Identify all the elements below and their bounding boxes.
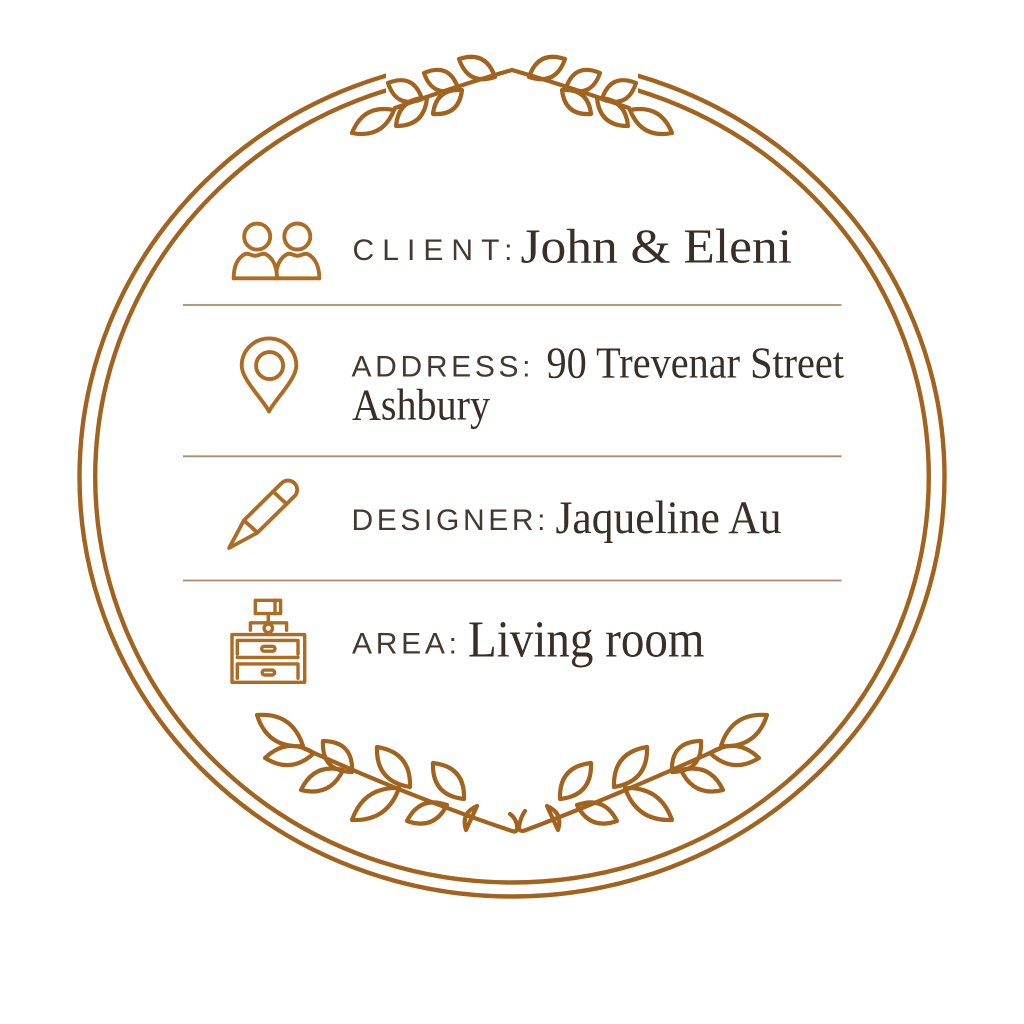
svg-text:AREA:: AREA: xyxy=(352,628,457,661)
svg-text:Jaqueline Au: Jaqueline Au xyxy=(556,492,782,544)
svg-text:Living room: Living room xyxy=(468,611,705,668)
svg-text:DESIGNER:: DESIGNER: xyxy=(352,504,546,537)
svg-text:John & Eleni: John & Eleni xyxy=(521,219,793,274)
svg-text:Ashbury: Ashbury xyxy=(352,381,490,430)
svg-text:90 Trevenar Street: 90 Trevenar Street xyxy=(547,339,845,388)
svg-text:ADDRESS:: ADDRESS: xyxy=(352,351,531,384)
